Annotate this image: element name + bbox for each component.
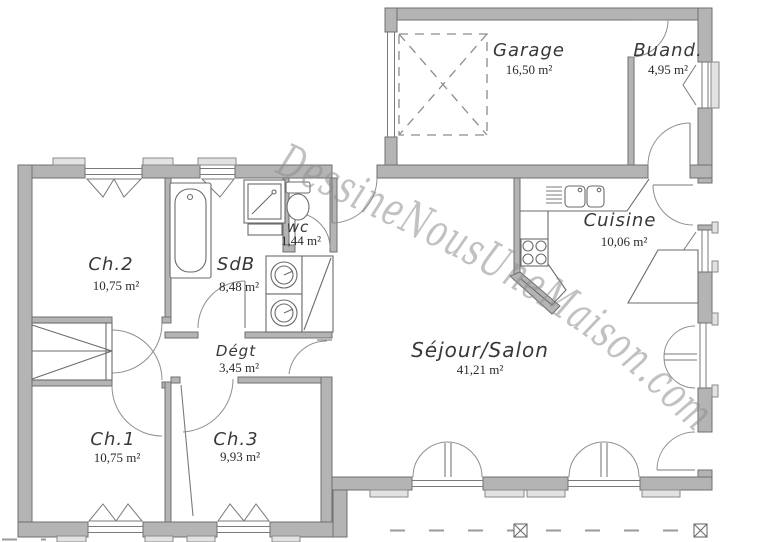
floor-plan-drawing: DessineNousUneMaison.com Garage 16,50 m²… [0, 0, 768, 542]
area-degagement: 3,45 m² [219, 360, 259, 375]
area-ch3: 9,93 m² [220, 449, 260, 464]
label-cuisine: Cuisine [584, 210, 657, 231]
window-ch2 [85, 169, 142, 198]
shower [244, 180, 285, 235]
terrace-post [694, 524, 707, 537]
kitchen-sink [546, 186, 604, 207]
label-buanderie: Buand. [633, 40, 702, 61]
label-sejour: Séjour/Salon [411, 338, 549, 362]
door-cuisine-exterior [653, 185, 693, 225]
area-ch1: 10,75 m² [94, 450, 141, 465]
dish-drainer [546, 187, 562, 203]
door-buanderie [648, 123, 690, 165]
area-sejour: 41,21 m² [457, 362, 504, 377]
bathtub [170, 183, 211, 278]
kitchen-bar [628, 250, 698, 303]
french-door-sejour-2 [568, 442, 640, 487]
label-ch2: Ch.2 [88, 254, 133, 275]
window-sills [53, 62, 719, 542]
area-wc: 1,44 m² [281, 233, 321, 248]
window-ch3 [217, 504, 270, 533]
area-cuisine: 10,06 m² [601, 234, 648, 249]
label-sdb: SdB [217, 254, 255, 275]
label-ch3: Ch.3 [213, 429, 258, 450]
wardrobe [32, 323, 112, 380]
windows [85, 62, 708, 533]
label-ch1: Ch.1 [90, 429, 135, 450]
garage-roof-hatch [399, 34, 487, 135]
linen-cabinet [302, 256, 333, 332]
area-garage: 16,50 m² [506, 62, 553, 77]
door-degagement-sejour [289, 340, 332, 374]
french-door-sejour-1 [412, 442, 483, 487]
garage-door-opening [388, 32, 395, 137]
area-ch2: 10,75 m² [93, 278, 140, 293]
washing-machine [266, 256, 302, 294]
terrace-post [514, 524, 527, 537]
area-buanderie: 4,95 m² [648, 62, 688, 77]
dryer [266, 294, 302, 332]
window-ch1 [88, 504, 143, 533]
door-ch1 [112, 330, 162, 436]
floor-plan: DessineNousUneMaison.com Garage 16,50 m²… [0, 0, 768, 542]
label-degagement: Dégt [216, 342, 256, 360]
label-garage: Garage [493, 40, 565, 61]
area-sdb: 8,48 m² [219, 279, 259, 294]
